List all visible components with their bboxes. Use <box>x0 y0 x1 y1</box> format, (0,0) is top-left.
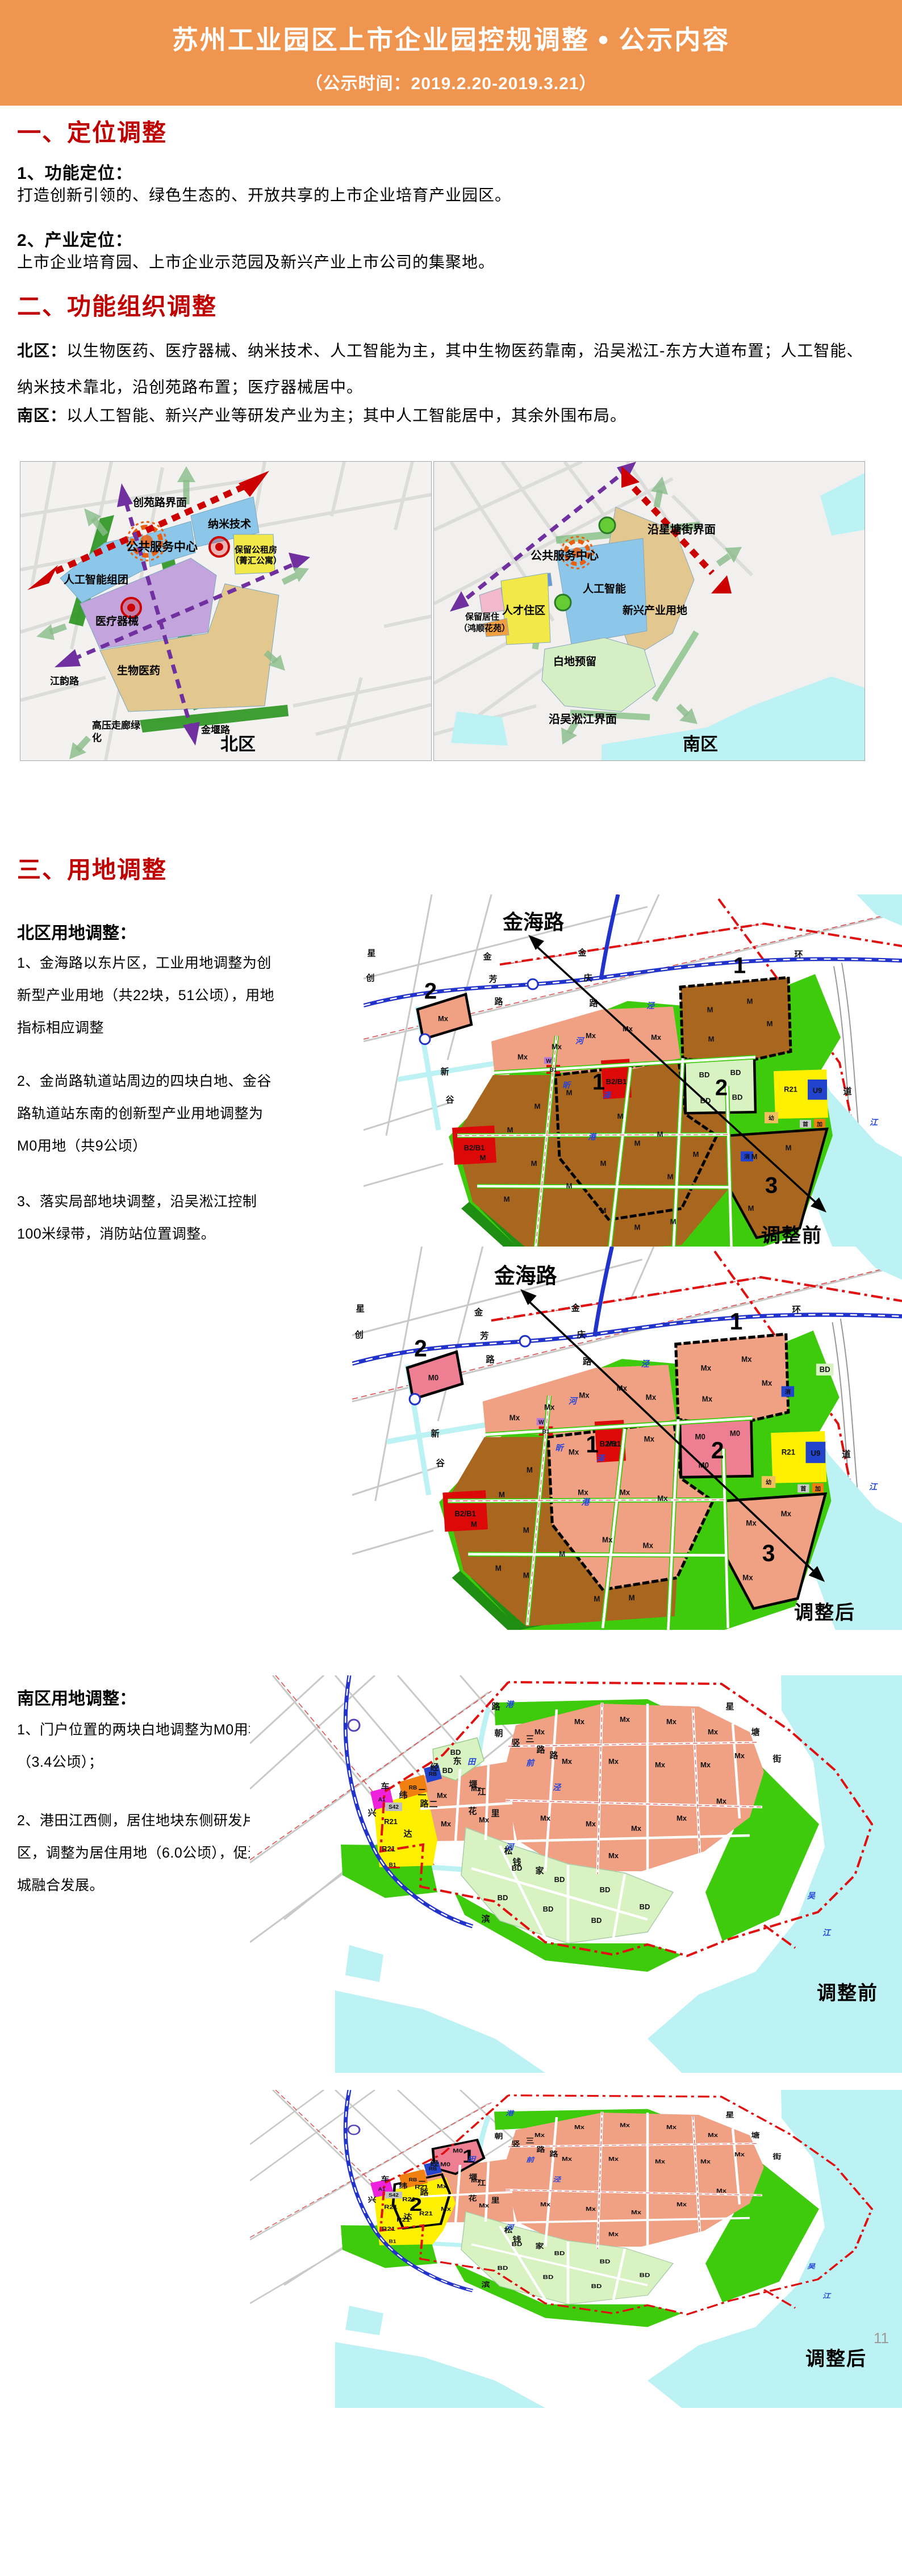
svg-text:首: 首 <box>803 1120 808 1128</box>
marker-1b: 1 <box>586 1431 599 1457</box>
svg-text:Mx: Mx <box>586 2206 596 2212</box>
svg-text:Mx: Mx <box>479 1816 490 1824</box>
svg-text:Mx: Mx <box>602 1536 613 1544</box>
north-adjust-title: 北区用地调整： <box>17 919 136 944</box>
svg-text:B1: B1 <box>389 2239 396 2244</box>
south-overview-map: 沿星塘街界面 公共服务中心 人工智能 新兴产业用地 人才住区 保留居住 （鸿顺花… <box>433 461 865 761</box>
metro-station-icon <box>410 1394 420 1404</box>
svg-text:吴: 吴 <box>807 1891 816 1900</box>
svg-text:BD: BD <box>543 1905 554 1913</box>
label-south-region: 南区 <box>683 734 718 754</box>
svg-text:M: M <box>629 1594 635 1602</box>
south-adjust-item2: 2、港田江西侧，居住地块东侧研发片区，调整为居住用地（6.0公顷），促进产城融合… <box>17 1805 281 1902</box>
svg-text:Mx: Mx <box>741 1355 752 1364</box>
svg-text:BD: BD <box>600 2259 611 2265</box>
label-bio: 生物医药 <box>117 664 160 677</box>
svg-text:Mx: Mx <box>441 2206 452 2212</box>
svg-text:BD: BD <box>591 1916 602 1925</box>
marker-1: 1 <box>733 953 746 978</box>
zone-keep-housing <box>479 588 504 614</box>
svg-text:B2/B1: B2/B1 <box>454 1509 476 1518</box>
svg-text:谷: 谷 <box>446 1095 454 1105</box>
svg-text:M0: M0 <box>453 2148 463 2154</box>
svg-text:纬: 纬 <box>399 2181 407 2189</box>
north-zone-body: 以生物医药、医疗器械、纳米技术、人工智能为主，其中生物医药靠南，沿吴淞江-东方大… <box>17 342 863 396</box>
svg-text:Mx: Mx <box>437 1791 448 1800</box>
svg-text:M: M <box>693 1150 699 1159</box>
svg-text:二: 二 <box>429 1800 437 1809</box>
svg-text:M: M <box>504 1195 510 1203</box>
svg-text:金: 金 <box>570 1302 580 1313</box>
svg-text:Mx: Mx <box>708 2132 719 2138</box>
south-after-caption: 调整后 <box>805 2343 867 2371</box>
svg-text:R21: R21 <box>384 1817 398 1826</box>
metro-station-icon <box>528 979 538 989</box>
svg-text:M: M <box>708 1035 715 1043</box>
svg-text:兴: 兴 <box>368 1808 376 1818</box>
svg-text:M: M <box>471 1520 477 1529</box>
svg-text:M: M <box>600 1206 607 1215</box>
svg-text:A1: A1 <box>378 1797 386 1803</box>
label-service-center: 公共服务中心 <box>126 540 198 554</box>
section1-item1-title: 1、功能定位： <box>17 159 133 184</box>
page-header: 苏州工业园区上市企业园控规调整●公示内容 （公示时间：2019.2.20-201… <box>0 0 902 106</box>
svg-text:路: 路 <box>549 1750 558 1760</box>
north-adjust-item2: 2、金尚路轨道站周边的四块白地、金谷路轨道站东南的创新型产业用地调整为M0用地（… <box>17 1065 281 1162</box>
svg-text:经: 经 <box>430 2159 439 2167</box>
svg-text:幼: 幼 <box>766 1479 771 1486</box>
label-rental-2: （菁汇公寓） <box>231 555 282 566</box>
svg-text:BD: BD <box>699 1070 710 1079</box>
label-keep-housing-2: （鸿顺花苑） <box>459 623 510 633</box>
svg-text:二: 二 <box>417 2180 426 2187</box>
svg-text:M: M <box>507 1126 513 1134</box>
label-wusong-interface: 沿吴淞江界面 <box>549 713 617 726</box>
svg-text:江: 江 <box>477 1787 486 1797</box>
south-zone-body: 以人工智能、新兴产业等研发产业为主；其中人工智能居中，其余外围布局。 <box>66 407 627 424</box>
svg-text:BD: BD <box>543 2274 554 2280</box>
svg-text:钱: 钱 <box>512 1857 521 1867</box>
svg-text:Mx: Mx <box>701 1364 712 1373</box>
svg-text:Mx: Mx <box>540 1814 551 1822</box>
svg-text:M: M <box>495 1564 502 1573</box>
svg-text:Mx: Mx <box>437 2183 448 2189</box>
svg-text:Mx: Mx <box>643 1541 654 1550</box>
svg-text:里: 里 <box>491 2197 499 2204</box>
svg-text:R21: R21 <box>382 1845 395 1853</box>
svg-text:江: 江 <box>477 2179 486 2187</box>
section3-heading: 三、用地调整 <box>17 851 167 885</box>
svg-text:东: 东 <box>453 1756 461 1766</box>
label-chuangyuan-interface: 创苑路界面 <box>132 496 187 509</box>
svg-text:RB: RB <box>409 2177 417 2182</box>
svg-text:Mx: Mx <box>734 2151 745 2157</box>
marker-2b: 2 <box>715 1076 728 1101</box>
svg-text:朝: 朝 <box>494 1729 503 1738</box>
svg-text:Mx: Mx <box>562 1757 573 1766</box>
svg-text:Mx: Mx <box>762 1379 772 1387</box>
south-adjust-title: 南区用地调整： <box>17 1684 136 1709</box>
svg-text:Mx: Mx <box>608 1851 619 1860</box>
svg-text:Mx: Mx <box>608 2156 619 2162</box>
svg-text:W: W <box>538 1419 544 1425</box>
north-adjust-item3: 3、落实局部地块调整，沿吴淞江控制100米绿带，消防站位置调整。 <box>17 1186 281 1251</box>
svg-text:Mx: Mx <box>644 1435 655 1444</box>
svg-text:R21: R21 <box>382 2226 395 2232</box>
svg-text:星: 星 <box>725 1702 734 1712</box>
svg-text:谷: 谷 <box>436 1458 445 1468</box>
svg-text:M: M <box>499 1491 505 1499</box>
svg-text:钱: 钱 <box>512 2235 521 2243</box>
svg-text:花: 花 <box>468 1806 477 1816</box>
svg-text:M: M <box>523 1571 529 1579</box>
south-before-caption: 调整前 <box>817 1977 878 2005</box>
svg-text:Mx: Mx <box>620 1715 630 1724</box>
label-jinhai-road: 金海路 <box>494 1264 557 1287</box>
svg-text:Mx: Mx <box>607 1440 617 1448</box>
svg-text:Mx: Mx <box>578 1488 588 1496</box>
svg-text:三: 三 <box>525 1734 534 1744</box>
svg-text:BD: BD <box>732 1093 743 1102</box>
svg-text:M: M <box>748 1204 754 1212</box>
svg-text:达: 达 <box>403 2213 412 2220</box>
label-jinyan-road: 金堰路 <box>201 724 231 735</box>
svg-text:M: M <box>617 1112 624 1120</box>
label-ai-south: 人工智能 <box>583 582 626 595</box>
label-jinhai-road: 金海路 <box>502 911 564 934</box>
svg-text:创: 创 <box>354 1329 364 1340</box>
svg-text:路: 路 <box>486 1354 495 1365</box>
label-service-center-south: 公共服务中心 <box>531 549 599 562</box>
svg-text:金: 金 <box>474 1307 483 1318</box>
svg-text:加: 加 <box>816 1120 822 1128</box>
svg-text:Mx: Mx <box>620 1488 630 1496</box>
svg-text:M: M <box>527 1466 533 1474</box>
section1-heading: 一、定位调整 <box>17 114 167 148</box>
svg-text:Mx: Mx <box>746 1519 757 1528</box>
svg-text:家: 家 <box>535 1866 544 1876</box>
svg-text:M: M <box>480 1153 486 1162</box>
svg-text:Mx: Mx <box>742 1573 753 1582</box>
svg-text:路: 路 <box>536 1745 545 1755</box>
svg-text:Mx: Mx <box>569 1448 579 1457</box>
svg-text:BD: BD <box>640 2272 650 2278</box>
svg-text:Mx: Mx <box>657 1494 668 1503</box>
marker-2: 2 <box>424 979 437 1004</box>
svg-text:消: 消 <box>785 1388 791 1395</box>
svg-text:M: M <box>751 1152 758 1161</box>
svg-text:Mx: Mx <box>702 1395 713 1403</box>
svg-text:路: 路 <box>549 2150 558 2157</box>
svg-text:江: 江 <box>822 1928 832 1937</box>
svg-text:家: 家 <box>535 2242 544 2250</box>
label-hv-corridor-1: 高压走廊绿 <box>92 720 141 731</box>
svg-text:路: 路 <box>420 1799 429 1809</box>
svg-text:B2/B1: B2/B1 <box>464 1143 485 1152</box>
svg-text:车: 车 <box>381 1782 389 1792</box>
svg-text:道: 道 <box>843 1086 852 1097</box>
svg-text:街: 街 <box>772 2152 782 2160</box>
section1-item2-title: 2、产业定位： <box>17 226 133 251</box>
svg-text:Mx: Mx <box>700 2159 711 2165</box>
svg-text:滨: 滨 <box>481 2281 490 2289</box>
svg-text:B1: B1 <box>542 1429 550 1435</box>
svg-text:堰: 堰 <box>469 2173 477 2181</box>
label-rental-1: 保留公租房 <box>234 545 277 555</box>
svg-text:路: 路 <box>495 997 504 1007</box>
svg-text:塘: 塘 <box>751 1727 759 1737</box>
marker-2: 2 <box>410 2194 422 2215</box>
svg-text:Mx: Mx <box>562 2156 573 2162</box>
svg-text:Mx: Mx <box>700 1760 711 1769</box>
svg-text:Mx: Mx <box>579 1391 590 1400</box>
svg-text:Mx: Mx <box>438 1014 449 1023</box>
label-north-region: 北区 <box>220 734 256 754</box>
svg-text:Mx: Mx <box>574 1717 585 1726</box>
svg-text:庆: 庆 <box>577 1329 586 1340</box>
south-zone-label: 南区： <box>17 407 66 424</box>
marker-2: 2 <box>414 1335 427 1361</box>
svg-text:星: 星 <box>368 949 376 959</box>
svg-text:滨: 滨 <box>481 1914 490 1924</box>
svg-text:M: M <box>670 1218 676 1226</box>
svg-text:路: 路 <box>536 2145 545 2153</box>
label-xingtang-interface: 沿星塘街界面 <box>648 522 716 536</box>
svg-text:Mx: Mx <box>676 1814 687 1822</box>
svg-text:兴: 兴 <box>368 2196 376 2203</box>
bullet-icon: ● <box>590 28 619 50</box>
svg-text:芳: 芳 <box>489 974 498 984</box>
label-new-industry: 新兴产业用地 <box>623 604 687 617</box>
marker-3: 3 <box>762 1540 775 1566</box>
svg-text:庆: 庆 <box>584 973 592 983</box>
svg-text:A1: A1 <box>378 2187 386 2192</box>
svg-text:M0: M0 <box>695 1432 705 1441</box>
page-title: 苏州工业园区上市企业园控规调整●公示内容 <box>0 19 902 57</box>
label-medical: 医疗器械 <box>95 614 139 628</box>
svg-text:B2/B1: B2/B1 <box>606 1077 627 1086</box>
label-talent-housing: 人才住区 <box>502 604 545 617</box>
svg-text:Mx: Mx <box>646 1393 657 1402</box>
svg-text:Mx: Mx <box>708 1728 719 1736</box>
svg-text:路: 路 <box>491 1701 500 1712</box>
svg-text:芳: 芳 <box>480 1330 488 1341</box>
svg-text:Mx: Mx <box>651 1033 662 1042</box>
svg-text:吴: 吴 <box>807 2263 816 2270</box>
label-white-land: 白地预留 <box>553 655 596 668</box>
svg-text:金: 金 <box>577 948 587 958</box>
svg-text:M: M <box>534 1102 541 1110</box>
svg-text:Mx: Mx <box>544 1403 555 1411</box>
svg-text:M: M <box>657 1130 663 1139</box>
north-zone-label: 北区： <box>17 342 66 359</box>
page: 苏州工业园区上市企业园控规调整●公示内容 （公示时间：2019.2.20-201… <box>0 0 902 2576</box>
svg-text:RB: RB <box>409 1785 417 1791</box>
marker-2b: 2 <box>711 1437 724 1463</box>
svg-text:M0: M0 <box>440 2161 451 2168</box>
svg-text:M: M <box>566 1089 573 1097</box>
svg-text:金: 金 <box>482 952 492 962</box>
svg-text:创: 创 <box>365 973 374 983</box>
svg-text:BD: BD <box>554 1875 565 1884</box>
svg-text:BD: BD <box>820 1365 830 1374</box>
page-title-suffix: 公示内容 <box>619 25 730 55</box>
svg-text:M: M <box>747 997 753 1006</box>
svg-text:加: 加 <box>815 1485 821 1492</box>
svg-text:新: 新 <box>441 1067 449 1077</box>
label-hv-corridor-2: 化 <box>92 732 102 743</box>
page-number: 11 <box>874 2330 889 2347</box>
svg-text:BD: BD <box>591 2283 602 2289</box>
svg-text:泾: 泾 <box>646 1001 655 1010</box>
svg-text:二: 二 <box>417 1788 426 1797</box>
svg-text:Mx: Mx <box>540 2201 551 2207</box>
svg-text:江: 江 <box>869 1482 879 1492</box>
svg-text:Mx: Mx <box>716 2188 727 2194</box>
north-overview-map: 创苑路界面 纳米技术 公共服务中心 保留公租房 （菁汇公寓） 人工智能组团 医疗… <box>20 461 432 761</box>
metro-station-icon <box>348 2125 360 2134</box>
svg-text:BD: BD <box>498 2265 508 2271</box>
svg-text:朝: 朝 <box>494 2132 503 2140</box>
metro-station-icon <box>420 1034 430 1044</box>
metro-station-icon <box>348 1720 360 1731</box>
section2-heading: 二、功能组织调整 <box>17 287 217 322</box>
north-before-map: Mx MxMxMxMxMx MMMM BDBDBDBD R21 U9 幼 首 加… <box>364 894 902 1258</box>
section1-item1-body: 打造创新引领的、绿色生态的、开放共享的上市企业培育产业园区。 <box>17 183 511 206</box>
svg-text:B1: B1 <box>389 1862 396 1868</box>
svg-text:江: 江 <box>870 1118 879 1127</box>
svg-text:M0: M0 <box>730 1429 740 1437</box>
svg-text:Mx: Mx <box>631 1824 642 1833</box>
label-keep-housing-1: 保留居住 <box>465 612 499 622</box>
svg-text:环: 环 <box>792 1305 800 1315</box>
svg-text:Mx: Mx <box>608 1757 619 1766</box>
svg-text:M: M <box>786 1143 792 1152</box>
svg-text:港: 港 <box>588 1132 597 1141</box>
svg-text:Mx: Mx <box>574 2124 585 2130</box>
svg-text:纬: 纬 <box>399 1790 407 1800</box>
svg-text:BD: BD <box>450 1748 461 1757</box>
svg-text:Mx: Mx <box>510 1414 520 1422</box>
svg-text:M: M <box>600 1159 607 1168</box>
svg-text:花: 花 <box>468 2194 477 2202</box>
svg-text:B1: B1 <box>550 1067 557 1073</box>
north-before-caption: 调整前 <box>761 1220 822 1248</box>
svg-text:R21: R21 <box>784 1085 797 1094</box>
svg-text:U9: U9 <box>813 1086 822 1095</box>
svg-text:泾: 泾 <box>641 1359 650 1369</box>
svg-text:Mx: Mx <box>666 1717 677 1726</box>
svg-text:S42: S42 <box>389 1804 399 1810</box>
svg-text:Mx: Mx <box>620 2122 630 2128</box>
svg-text:塘: 塘 <box>751 2131 759 2139</box>
svg-text:经: 经 <box>430 1762 439 1772</box>
svg-text:星: 星 <box>725 2111 734 2118</box>
svg-text:田: 田 <box>467 1757 477 1766</box>
page-title-main: 苏州工业园区上市企业园控规调整 <box>172 25 590 55</box>
svg-text:M: M <box>594 1595 600 1603</box>
svg-text:W: W <box>546 1058 552 1064</box>
svg-text:Mx: Mx <box>586 1820 596 1828</box>
svg-text:里: 里 <box>491 1809 499 1818</box>
section2-north-paragraph: 北区：以生物医药、医疗器械、纳米技术、人工智能为主，其中生物医药靠南，沿吴淞江-… <box>17 333 869 405</box>
svg-text:M: M <box>767 1019 773 1028</box>
svg-text:Mx: Mx <box>441 1820 452 1828</box>
svg-text:M0: M0 <box>428 1373 439 1382</box>
metro-station-icon <box>520 1336 530 1346</box>
svg-text:Mx: Mx <box>517 1052 528 1061</box>
svg-text:BD: BD <box>600 1885 611 1894</box>
svg-text:Mx: Mx <box>479 2202 490 2209</box>
svg-text:泾: 泾 <box>553 1783 562 1792</box>
svg-text:街: 街 <box>772 1754 781 1764</box>
svg-text:Mx: Mx <box>716 1797 727 1805</box>
svg-text:堰: 堰 <box>469 1780 477 1789</box>
svg-text:BD: BD <box>640 1902 650 1911</box>
svg-text:消: 消 <box>744 1153 750 1160</box>
svg-text:Mx: Mx <box>734 1751 745 1760</box>
label-ai-cluster: 人工智能组团 <box>64 573 128 586</box>
svg-text:M: M <box>667 1173 674 1181</box>
svg-text:竖: 竖 <box>511 2140 520 2148</box>
svg-text:Mx: Mx <box>655 2159 666 2165</box>
svg-text:路: 路 <box>420 2188 428 2196</box>
section2-south-paragraph: 南区：以人工智能、新兴产业等研发产业为主；其中人工智能居中，其余外围布局。 <box>17 398 869 434</box>
svg-text:Mx: Mx <box>781 1509 792 1518</box>
svg-text:Mx: Mx <box>608 2231 619 2238</box>
svg-text:BD: BD <box>730 1068 741 1077</box>
north-adjust-item1: 1、金海路以东片区，工业用地调整为创新型产业用地（共22块，51公顷），用地指标… <box>17 947 281 1044</box>
svg-text:竖: 竖 <box>511 1738 520 1748</box>
svg-text:港: 港 <box>581 1498 591 1507</box>
svg-text:新: 新 <box>431 1428 440 1438</box>
publicity-period: （公示时间：2019.2.20-2019.3.21） <box>0 69 902 94</box>
north-after-caption: 调整后 <box>794 1597 855 1625</box>
south-before-map: MxMxMxMxMx MxMxMxMxMx MxMxMxMxMxMx MxMxM… <box>250 1675 902 2073</box>
svg-text:M: M <box>634 1139 641 1148</box>
marker-1b: 1 <box>592 1070 605 1095</box>
svg-text:Mx: Mx <box>666 2124 677 2130</box>
svg-text:Mx: Mx <box>534 1728 545 1736</box>
north-after-map: M0 MxMxMxMxMx MxMxMxMx M0M0M0 R21 U9 幼 首… <box>352 1247 902 1630</box>
svg-text:Mx: Mx <box>586 1031 596 1040</box>
svg-text:Mx: Mx <box>631 2209 642 2215</box>
svg-text:BD: BD <box>554 2250 565 2256</box>
svg-text:达: 达 <box>403 1829 412 1839</box>
svg-text:BD: BD <box>498 1893 508 1902</box>
svg-text:Mx: Mx <box>655 1760 666 1769</box>
svg-text:星: 星 <box>356 1303 365 1314</box>
svg-text:M: M <box>634 1223 641 1232</box>
zone-white-land <box>542 638 655 712</box>
svg-text:Mx: Mx <box>534 2132 545 2138</box>
svg-text:M: M <box>523 1526 529 1534</box>
svg-text:U9: U9 <box>811 1449 820 1458</box>
svg-text:幼: 幼 <box>769 1114 774 1122</box>
svg-text:M: M <box>707 1005 713 1014</box>
south-adjust-item1: 1、门户位置的两块白地调整为M0用地（3.4公顷）； <box>17 1714 281 1779</box>
svg-text:道: 道 <box>842 1449 851 1460</box>
svg-text:R21: R21 <box>782 1448 796 1457</box>
svg-text:车: 车 <box>381 2174 389 2182</box>
svg-text:S42: S42 <box>389 2193 399 2198</box>
svg-text:M: M <box>531 1159 537 1168</box>
svg-text:Mx: Mx <box>676 2201 687 2207</box>
svg-text:环: 环 <box>795 950 803 960</box>
label-nano: 纳米技术 <box>208 517 251 530</box>
svg-text:三: 三 <box>525 2137 534 2144</box>
section1-item2-body: 上市企业培育园、上市企业示范园及新兴产业上市公司的集聚地。 <box>17 250 495 273</box>
